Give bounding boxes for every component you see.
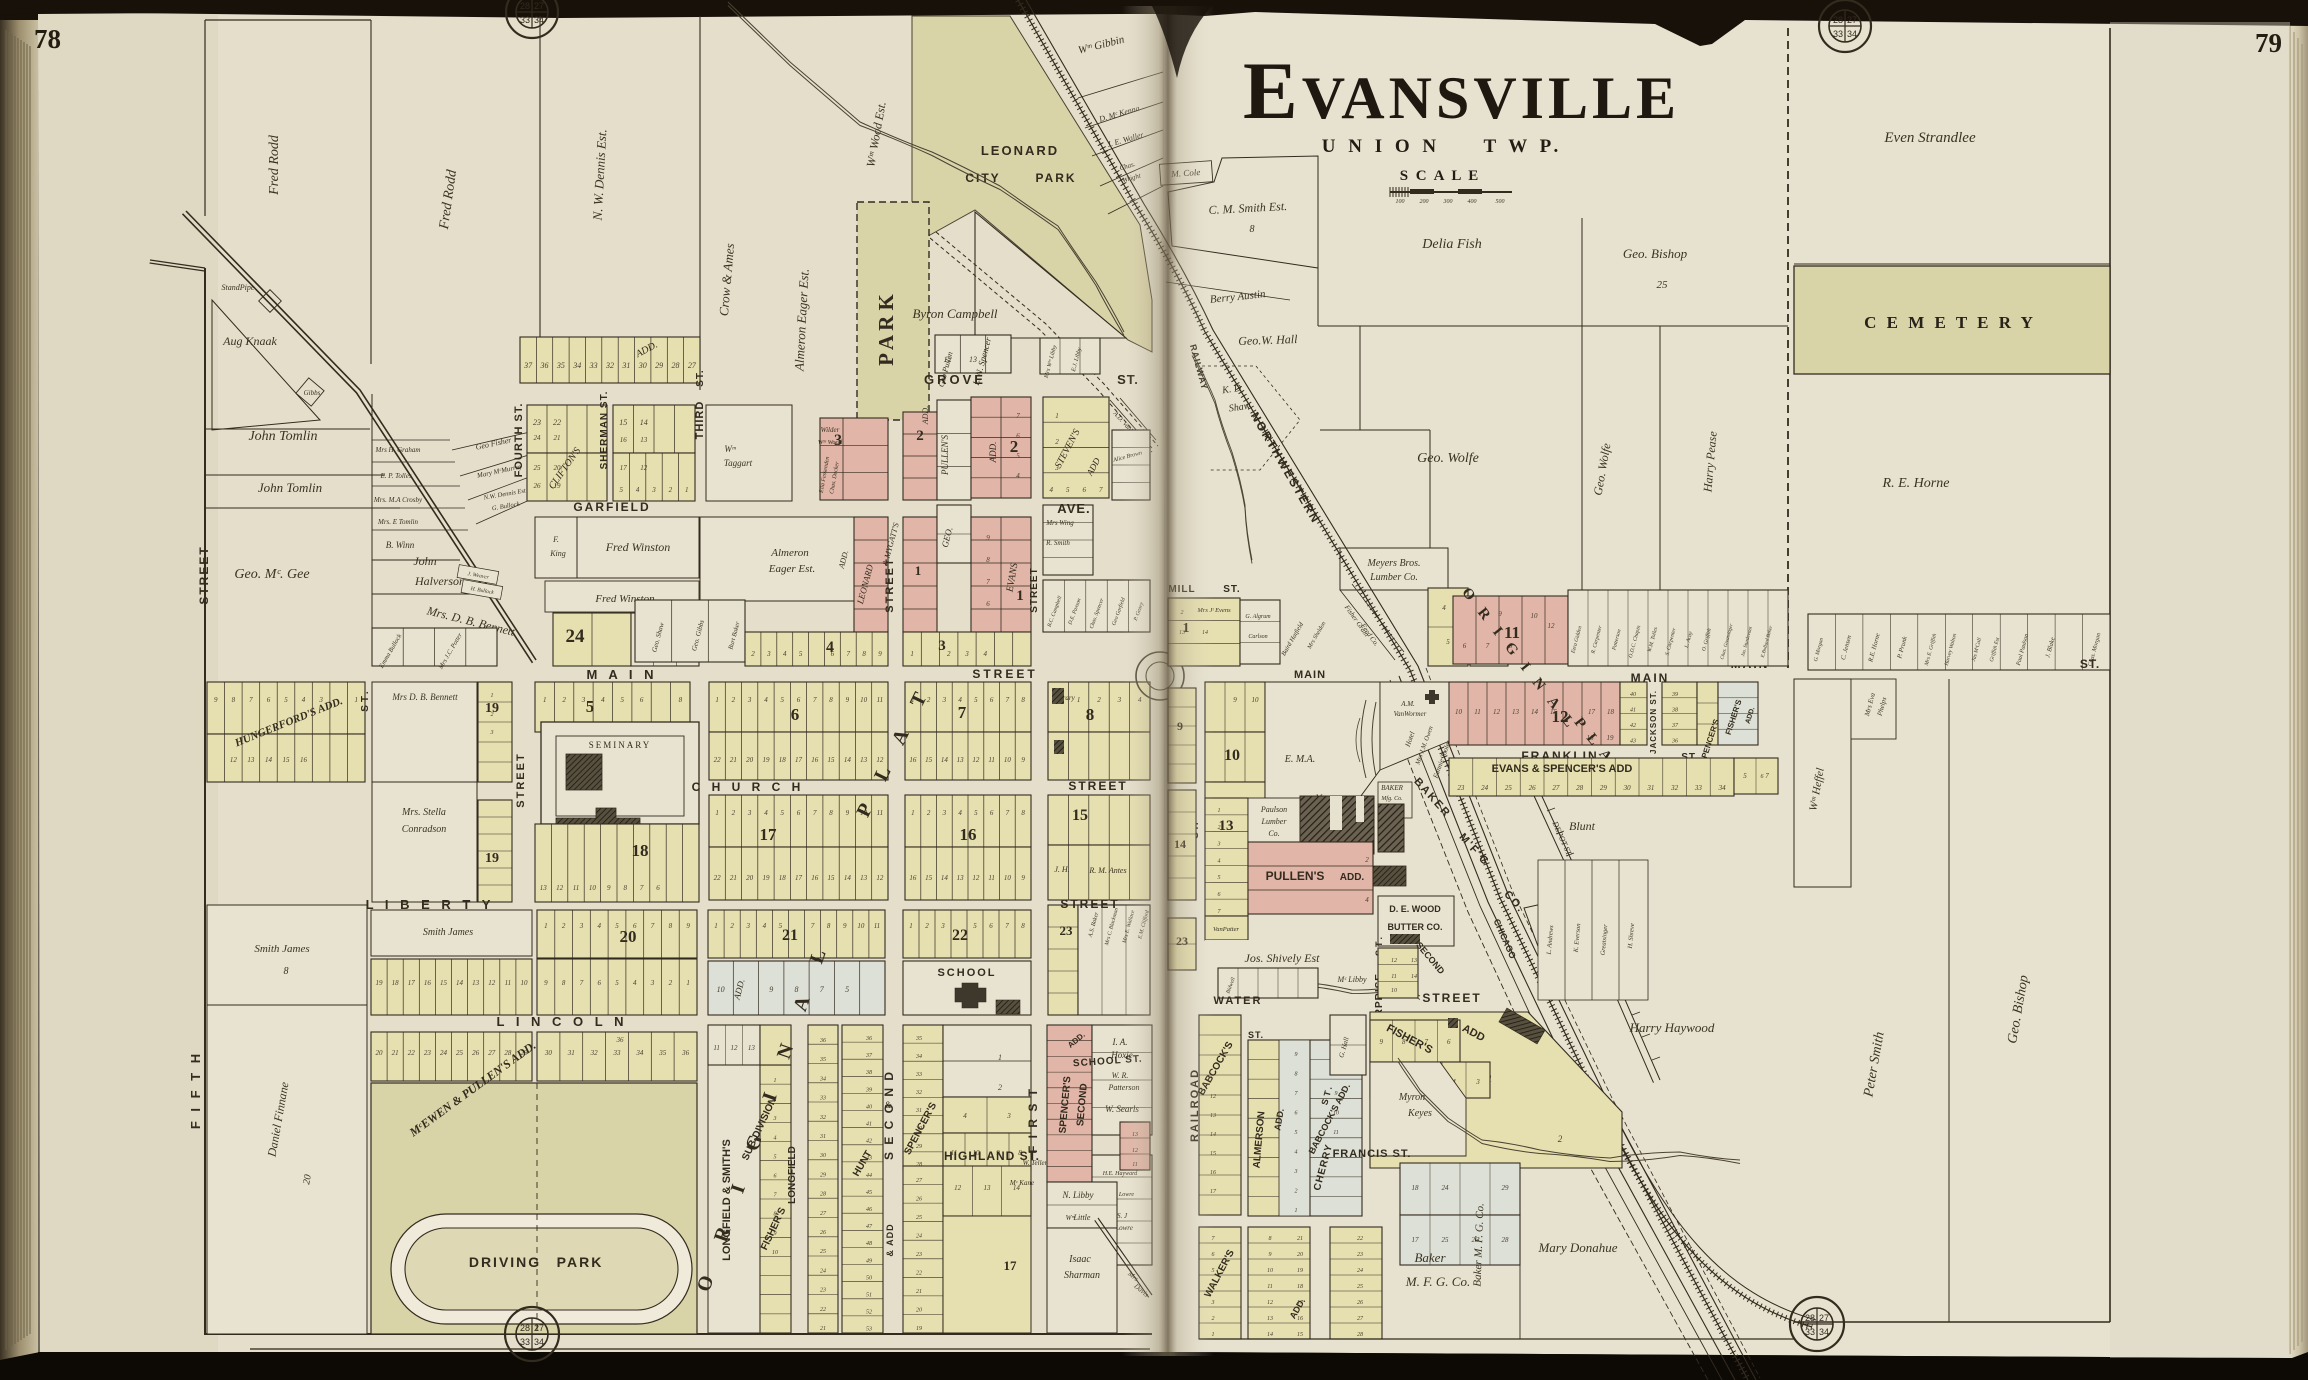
svg-text:10: 10 (1333, 1111, 1339, 1117)
svg-text:27: 27 (1819, 1313, 1829, 1323)
svg-text:17: 17 (1004, 1258, 1018, 1273)
svg-text:5: 5 (284, 696, 288, 704)
svg-text:9: 9 (986, 534, 990, 542)
svg-text:22: 22 (714, 756, 722, 764)
svg-text:21: 21 (392, 1049, 399, 1057)
svg-text:M. F. G. Co.: M. F. G. Co. (1405, 1274, 1470, 1289)
svg-text:11: 11 (1474, 708, 1480, 716)
svg-text:Gibbs: Gibbs (304, 389, 321, 397)
svg-text:JACKSON ST.: JACKSON ST. (1649, 690, 1658, 754)
svg-text:14: 14 (1411, 973, 1417, 980)
svg-text:4: 4 (636, 486, 640, 494)
svg-text:John Tomlin: John Tomlin (248, 429, 317, 444)
svg-text:3: 3 (1006, 1112, 1011, 1120)
svg-text:48: 48 (866, 1240, 872, 1247)
svg-text:22: 22 (820, 1307, 826, 1313)
svg-text:11: 11 (877, 696, 883, 704)
svg-text:22: 22 (916, 1271, 922, 1277)
svg-text:17: 17 (795, 874, 803, 882)
svg-text:9: 9 (686, 922, 690, 930)
svg-text:6: 6 (774, 1174, 777, 1180)
svg-text:3: 3 (942, 809, 947, 817)
svg-text:11: 11 (874, 922, 880, 930)
svg-text:& ADD: & ADD (885, 1223, 895, 1256)
svg-text:16: 16 (424, 979, 432, 987)
svg-text:Mrs Wing: Mrs Wing (1045, 519, 1074, 527)
svg-text:3: 3 (1054, 464, 1059, 472)
svg-text:16: 16 (909, 874, 917, 882)
svg-text:4: 4 (763, 922, 767, 930)
svg-text:3: 3 (490, 730, 494, 736)
svg-text:31: 31 (819, 1134, 826, 1140)
svg-text:28: 28 (1805, 1313, 1815, 1323)
svg-text:5: 5 (615, 922, 619, 930)
svg-text:Fred Winston: Fred Winston (605, 540, 671, 554)
svg-text:33: 33 (915, 1072, 922, 1078)
svg-text:5: 5 (780, 809, 784, 817)
svg-text:9: 9 (1233, 696, 1237, 704)
svg-text:13: 13 (957, 874, 965, 882)
svg-text:16: 16 (960, 825, 977, 844)
svg-text:30: 30 (544, 1049, 553, 1057)
svg-text:28: 28 (1502, 1236, 1510, 1244)
svg-text:15: 15 (828, 756, 836, 764)
svg-text:18: 18 (1297, 1284, 1303, 1290)
svg-text:8: 8 (284, 966, 289, 977)
svg-text:9: 9 (846, 696, 850, 704)
svg-text:2: 2 (927, 809, 931, 817)
svg-text:5: 5 (779, 922, 783, 930)
svg-text:7: 7 (1005, 922, 1009, 930)
svg-text:1: 1 (911, 809, 915, 817)
svg-text:25: 25 (1357, 1284, 1363, 1290)
svg-text:37: 37 (865, 1053, 873, 1059)
svg-text:4: 4 (764, 696, 768, 704)
svg-text:9: 9 (769, 985, 773, 994)
svg-text:26: 26 (534, 482, 542, 490)
svg-text:19: 19 (762, 874, 770, 882)
svg-text:42: 42 (1630, 722, 1636, 729)
svg-text:15: 15 (1072, 807, 1088, 824)
svg-text:17: 17 (1412, 1236, 1420, 1244)
svg-text:6: 6 (990, 809, 994, 817)
svg-text:28: 28 (1576, 784, 1584, 792)
svg-text:29: 29 (655, 361, 663, 370)
svg-text:24: 24 (534, 434, 542, 442)
svg-text:10: 10 (1252, 696, 1260, 704)
svg-text:4: 4 (1442, 604, 1446, 612)
svg-text:9: 9 (1269, 1252, 1272, 1258)
svg-text:47: 47 (866, 1223, 873, 1230)
svg-text:2: 2 (916, 428, 924, 444)
svg-text:3: 3 (940, 922, 945, 930)
svg-text:33: 33 (1833, 29, 1843, 39)
svg-text:5: 5 (1295, 1130, 1298, 1136)
svg-text:23: 23 (1357, 1252, 1363, 1258)
svg-text:3: 3 (745, 922, 750, 930)
svg-text:18: 18 (779, 756, 787, 764)
svg-text:7: 7 (1486, 642, 1490, 650)
svg-text:33: 33 (1805, 1327, 1815, 1337)
svg-text:25: 25 (820, 1249, 826, 1255)
svg-text:16: 16 (909, 756, 917, 764)
svg-text:17: 17 (1588, 708, 1596, 716)
svg-text:8: 8 (623, 884, 627, 892)
svg-text:8: 8 (232, 696, 236, 704)
svg-text:Sharman: Sharman (1064, 1270, 1100, 1281)
svg-text:15: 15 (283, 756, 291, 764)
svg-text:10: 10 (520, 979, 528, 987)
svg-text:35: 35 (915, 1036, 922, 1042)
svg-text:29: 29 (1600, 784, 1608, 792)
svg-text:34: 34 (534, 15, 544, 25)
svg-text:12: 12 (1391, 958, 1397, 964)
svg-text:4: 4 (774, 1134, 777, 1141)
svg-text:12: 12 (972, 756, 980, 764)
svg-text:17: 17 (408, 979, 416, 987)
svg-text:1: 1 (491, 693, 494, 699)
svg-text:22: 22 (1357, 1236, 1363, 1242)
svg-text:8: 8 (1269, 1236, 1272, 1242)
svg-text:2: 2 (732, 809, 736, 817)
svg-text:40: 40 (866, 1103, 872, 1110)
svg-text:14: 14 (1531, 708, 1539, 716)
svg-text:15: 15 (440, 979, 448, 987)
svg-text:2: 2 (669, 486, 673, 494)
svg-text:33: 33 (1694, 784, 1703, 792)
svg-text:45: 45 (866, 1189, 872, 1196)
svg-text:7: 7 (811, 922, 815, 930)
svg-text:B. Winn: B. Winn (386, 540, 415, 550)
svg-text:2: 2 (1218, 825, 1221, 831)
svg-text:4: 4 (984, 650, 988, 658)
svg-text:27: 27 (1357, 1316, 1364, 1322)
svg-text:10: 10 (717, 985, 725, 994)
svg-text:79: 79 (2255, 28, 2282, 58)
svg-text:Carlson: Carlson (1248, 634, 1267, 640)
svg-text:Meyers Bros.: Meyers Bros. (1367, 558, 1421, 569)
svg-text:Geo. Mᶜ. Gee: Geo. Mᶜ. Gee (234, 567, 309, 582)
svg-text:10: 10 (857, 922, 865, 930)
svg-text:ST.: ST. (1248, 1030, 1264, 1040)
svg-text:32: 32 (590, 1049, 599, 1057)
svg-text:Paulson: Paulson (1260, 805, 1287, 814)
svg-text:13: 13 (247, 756, 255, 764)
svg-text:9: 9 (843, 922, 847, 930)
svg-text:28: 28 (671, 361, 679, 370)
svg-text:2: 2 (491, 712, 494, 718)
svg-text:14: 14 (1267, 1331, 1273, 1338)
svg-text:Delia Fish: Delia Fish (1421, 237, 1482, 252)
svg-text:ADD.: ADD. (988, 442, 998, 464)
svg-text:3: 3 (766, 650, 771, 658)
svg-text:14: 14 (844, 874, 852, 882)
svg-text:19: 19 (485, 851, 499, 866)
svg-text:6: 6 (1218, 892, 1221, 898)
svg-text:18: 18 (1412, 1184, 1420, 1192)
svg-text:Myron: Myron (1398, 1092, 1425, 1103)
svg-text:5: 5 (780, 696, 784, 704)
svg-text:11: 11 (505, 979, 511, 987)
svg-text:8: 8 (1021, 809, 1025, 817)
svg-text:33: 33 (819, 1096, 826, 1102)
svg-text:23: 23 (1060, 923, 1074, 938)
svg-text:Mfg. Co.: Mfg. Co. (1380, 795, 1402, 802)
svg-text:26: 26 (1529, 784, 1537, 792)
svg-text:R. E. Horne: R. E. Horne (1882, 476, 1950, 491)
svg-text:13: 13 (472, 979, 480, 987)
svg-text:Conradson: Conradson (402, 824, 446, 835)
svg-text:F I R S T: F I R S T (1026, 1087, 1040, 1153)
svg-text:STREET: STREET (972, 667, 1037, 681)
svg-text:39: 39 (1671, 692, 1678, 698)
svg-text:Smith James: Smith James (423, 927, 473, 938)
svg-text:EVANS & SPENCER'S ADD: EVANS & SPENCER'S ADD (1492, 763, 1633, 775)
svg-text:Geo.W. Hall: Geo.W. Hall (1238, 332, 1298, 348)
svg-text:Wilder: Wilder (821, 426, 840, 434)
svg-text:5: 5 (973, 922, 977, 930)
svg-text:Jos. Shively Est: Jos. Shively Est (1245, 951, 1321, 965)
svg-text:8: 8 (1021, 922, 1025, 930)
svg-text:11: 11 (988, 874, 994, 882)
svg-text:12: 12 (1267, 1300, 1273, 1306)
svg-text:32: 32 (915, 1090, 922, 1096)
svg-text:18: 18 (632, 841, 649, 860)
svg-text:8: 8 (679, 696, 683, 704)
svg-text:BUTTER CO.: BUTTER CO. (1388, 922, 1443, 932)
svg-text:7: 7 (651, 922, 655, 930)
svg-text:6: 6 (640, 696, 644, 704)
svg-text:19: 19 (916, 1326, 922, 1332)
svg-text:20: 20 (376, 1049, 384, 1057)
svg-text:4: 4 (1295, 1149, 1298, 1156)
svg-text:7: 7 (958, 703, 967, 722)
svg-text:ADD.: ADD. (921, 406, 930, 425)
svg-text:42: 42 (866, 1138, 872, 1145)
svg-text:6: 6 (267, 696, 271, 704)
svg-text:34: 34 (915, 1053, 922, 1060)
svg-text:2: 2 (751, 650, 755, 658)
svg-text:9: 9 (1335, 1091, 1338, 1097)
svg-text:24: 24 (1481, 784, 1489, 792)
svg-text:22: 22 (553, 418, 561, 427)
svg-text:STREET: STREET (1068, 779, 1127, 793)
svg-text:6: 6 (797, 696, 801, 704)
svg-text:15: 15 (828, 874, 836, 882)
svg-text:4: 4 (601, 696, 605, 704)
svg-text:21: 21 (730, 756, 737, 764)
svg-text:1: 1 (1016, 588, 1024, 604)
svg-text:5: 5 (619, 486, 623, 494)
svg-text:9: 9 (878, 650, 882, 658)
svg-text:Mrs D. B. Bennett: Mrs D. B. Bennett (391, 692, 458, 702)
svg-text:Aug Knaak: Aug Knaak (222, 334, 277, 348)
svg-text:Co.: Co. (1268, 829, 1279, 838)
svg-text:Little: Little (1073, 1213, 1091, 1222)
svg-text:HIGHLAND ST.: HIGHLAND ST. (944, 1149, 1040, 1163)
svg-text:6: 6 (633, 922, 637, 930)
svg-text:ST.: ST. (1223, 584, 1240, 595)
svg-text:BAKER: BAKER (1381, 784, 1403, 792)
svg-text:8: 8 (1250, 224, 1255, 235)
svg-text:6: 6 (791, 705, 800, 724)
svg-text:STREET: STREET (1422, 991, 1481, 1005)
svg-text:15: 15 (925, 756, 933, 764)
svg-text:9: 9 (1295, 1052, 1298, 1058)
svg-text:18: 18 (779, 874, 787, 882)
svg-text:S E C O N D: S E C O N D (882, 1070, 896, 1160)
svg-text:N. Libby: N. Libby (1061, 1190, 1093, 1200)
svg-text:E. M.A.: E. M.A. (1284, 754, 1316, 765)
svg-text:8: 8 (562, 979, 566, 987)
svg-text:7: 7 (580, 979, 584, 987)
svg-text:3: 3 (1294, 1169, 1298, 1175)
svg-text:WATER: WATER (1214, 995, 1263, 1007)
svg-text:15: 15 (1297, 1332, 1303, 1338)
svg-text:14: 14 (640, 418, 648, 427)
svg-text:200: 200 (1420, 199, 1429, 205)
svg-text:19: 19 (762, 756, 770, 764)
svg-text:6: 6 (1083, 486, 1087, 494)
svg-text:7: 7 (1099, 486, 1103, 494)
svg-text:John Tomlin: John Tomlin (258, 480, 322, 495)
svg-text:38: 38 (865, 1070, 872, 1076)
svg-text:37: 37 (1671, 723, 1679, 729)
svg-text:8: 8 (986, 556, 990, 564)
svg-text:3: 3 (581, 696, 586, 704)
svg-text:15: 15 (619, 418, 627, 427)
svg-text:StandPipe: StandPipe (222, 283, 255, 292)
svg-text:27: 27 (1847, 15, 1857, 25)
svg-text:10: 10 (772, 1250, 778, 1256)
svg-text:3: 3 (579, 922, 584, 930)
svg-text:6: 6 (1016, 432, 1020, 440)
svg-text:51: 51 (866, 1293, 872, 1299)
svg-text:5: 5 (1743, 772, 1747, 780)
svg-text:3: 3 (1217, 842, 1221, 848)
svg-text:400: 400 (1468, 198, 1477, 205)
svg-text:33: 33 (520, 1337, 530, 1347)
svg-text:8: 8 (862, 650, 866, 658)
svg-text:3: 3 (1117, 696, 1122, 704)
svg-text:13: 13 (1512, 708, 1520, 716)
svg-text:P A R K: P A R K (874, 293, 898, 365)
svg-text:10: 10 (1267, 1268, 1273, 1274)
svg-text:C H U R C H: C H U R C H (692, 780, 805, 794)
svg-text:9: 9 (846, 809, 850, 817)
svg-text:D. E. WOOD: D. E. WOOD (1389, 904, 1441, 914)
svg-text:34: 34 (1718, 784, 1727, 792)
svg-text:30: 30 (819, 1153, 826, 1159)
svg-text:20: 20 (746, 874, 754, 882)
svg-text:7: 7 (1006, 696, 1010, 704)
svg-text:S C A L E: S C A L E (1400, 168, 1481, 184)
svg-text:5: 5 (1218, 875, 1221, 881)
svg-text:21: 21 (554, 434, 561, 442)
svg-text:39: 39 (865, 1087, 872, 1093)
svg-text:7: 7 (813, 696, 817, 704)
svg-text:35: 35 (556, 361, 565, 370)
svg-text:7: 7 (640, 884, 644, 892)
svg-text:14: 14 (941, 874, 949, 882)
svg-text:4: 4 (1016, 472, 1020, 480)
svg-text:24: 24 (1357, 1267, 1363, 1274)
svg-text:PULLEN'S: PULLEN'S (940, 435, 950, 476)
svg-text:1: 1 (685, 486, 689, 494)
svg-text:GARFIELD: GARFIELD (573, 500, 650, 514)
svg-text:16: 16 (811, 756, 819, 764)
svg-text:PARK: PARK (557, 1254, 604, 1270)
svg-text:ST.: ST. (360, 688, 371, 711)
svg-text:26: 26 (472, 1049, 480, 1057)
svg-text:8: 8 (829, 696, 833, 704)
svg-text:12: 12 (944, 355, 952, 364)
svg-text:52: 52 (866, 1310, 872, 1316)
svg-text:J. H.: J. H. (1054, 865, 1069, 874)
svg-text:6: 6 (597, 979, 601, 987)
svg-text:6: 6 (989, 922, 993, 930)
svg-text:Mrs. E Tomlin: Mrs. E Tomlin (377, 518, 419, 526)
svg-text:34: 34 (635, 1049, 644, 1057)
svg-text:21: 21 (782, 927, 798, 944)
svg-text:9: 9 (774, 1231, 777, 1237)
svg-text:5: 5 (1016, 452, 1020, 460)
svg-text:Mrs H. Graham: Mrs H. Graham (375, 446, 421, 454)
svg-text:10: 10 (1224, 747, 1240, 764)
svg-text:STREET: STREET (515, 752, 527, 807)
svg-text:21: 21 (820, 1326, 826, 1332)
svg-text:10: 10 (860, 696, 868, 704)
svg-text:38: 38 (1671, 708, 1678, 714)
svg-text:78: 78 (34, 24, 61, 54)
svg-text:34: 34 (819, 1075, 826, 1082)
svg-text:2: 2 (562, 696, 566, 704)
svg-text:CITY: CITY (965, 171, 1000, 185)
svg-text:3: 3 (318, 696, 323, 704)
svg-text:7: 7 (1006, 809, 1010, 817)
svg-text:500: 500 (1496, 199, 1505, 205)
svg-text:Harry Haywood: Harry Haywood (1629, 1020, 1715, 1035)
svg-text:31: 31 (567, 1049, 575, 1057)
svg-text:11: 11 (1267, 1284, 1273, 1290)
svg-text:6: 6 (1761, 774, 1764, 780)
svg-text:24: 24 (916, 1233, 922, 1240)
svg-text:41: 41 (1630, 707, 1636, 714)
svg-text:5: 5 (845, 985, 849, 994)
svg-text:36: 36 (865, 1036, 872, 1042)
svg-text:20: 20 (746, 756, 754, 764)
svg-text:1: 1 (715, 809, 719, 817)
svg-text:ST.: ST. (2080, 657, 2100, 671)
svg-text:F I F T H: F I F T H (188, 1051, 203, 1129)
svg-text:Mrs. Stella: Mrs. Stella (401, 807, 446, 818)
svg-text:27: 27 (488, 1049, 496, 1057)
svg-text:12: 12 (1548, 622, 1556, 630)
svg-text:7: 7 (1765, 772, 1769, 780)
svg-text:GROVE: GROVE (924, 372, 986, 387)
svg-text:53: 53 (866, 1327, 872, 1333)
svg-text:Wᵐ Wood: Wᵐ Wood (818, 439, 843, 446)
svg-text:1: 1 (715, 696, 719, 704)
svg-text:SCHOOL: SCHOOL (937, 967, 996, 979)
svg-text:5: 5 (974, 809, 978, 817)
svg-text:35: 35 (658, 1049, 667, 1057)
svg-text:6: 6 (797, 809, 801, 817)
svg-text:34: 34 (1847, 29, 1857, 39)
svg-text:8: 8 (829, 809, 833, 817)
svg-text:26: 26 (1357, 1300, 1363, 1306)
svg-text:1: 1 (1218, 808, 1221, 814)
